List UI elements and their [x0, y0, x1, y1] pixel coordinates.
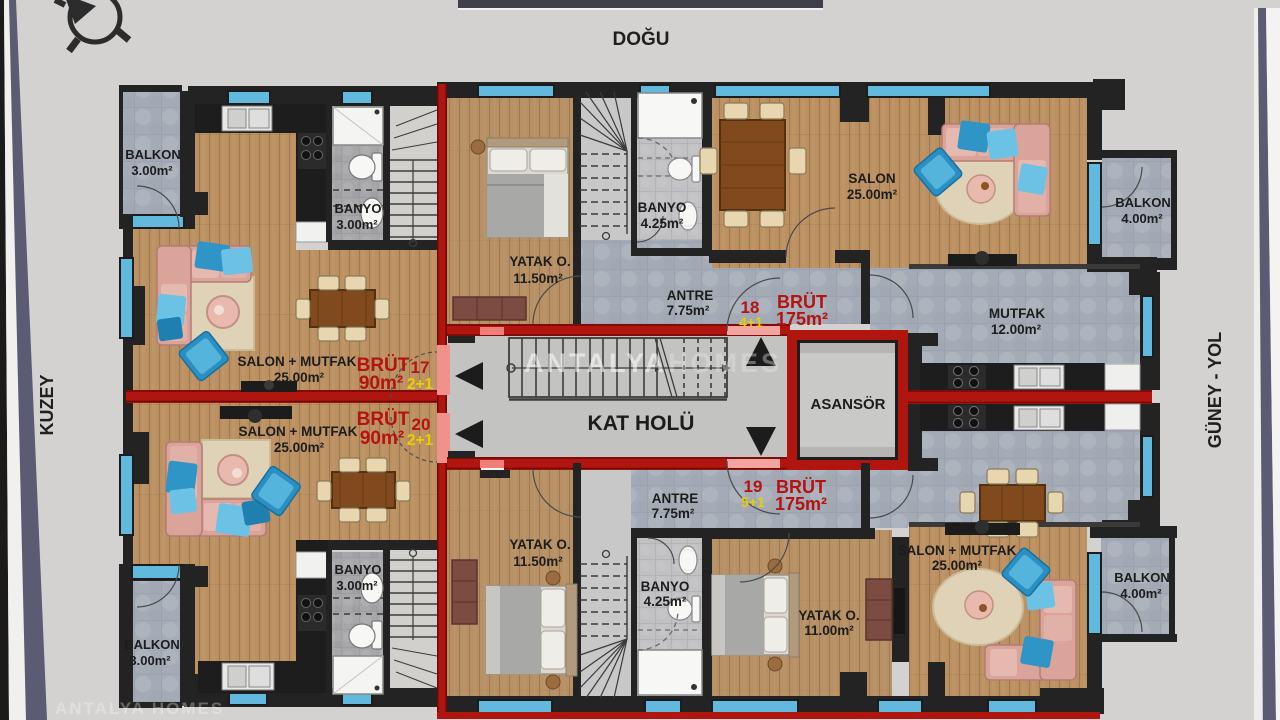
- svg-text:SALON: SALON: [848, 171, 895, 186]
- svg-text:5+1: 5+1: [741, 494, 765, 510]
- svg-text:ANTRE: ANTRE: [652, 491, 699, 506]
- svg-text:7.75m²: 7.75m²: [667, 303, 710, 318]
- svg-text:BANYO: BANYO: [335, 562, 382, 577]
- svg-text:12.00m²: 12.00m²: [991, 322, 1042, 337]
- svg-text:SALON + MUTFAK: SALON + MUTFAK: [898, 543, 1017, 558]
- svg-text:25.00m²: 25.00m²: [932, 558, 983, 573]
- svg-text:11.50m²: 11.50m²: [513, 554, 563, 569]
- svg-text:SALON + MUTFAK: SALON + MUTFAK: [238, 354, 357, 369]
- svg-text:KAT HOLÜ: KAT HOLÜ: [588, 412, 695, 435]
- svg-text:4.25m²: 4.25m²: [644, 594, 687, 609]
- svg-text:BANYO: BANYO: [335, 201, 382, 216]
- svg-text:BANYO: BANYO: [641, 579, 690, 594]
- svg-text:YATAK O.: YATAK O.: [509, 254, 570, 269]
- svg-text:3.00m²: 3.00m²: [336, 578, 378, 593]
- svg-text:2+1: 2+1: [407, 376, 434, 393]
- svg-text:BALKON: BALKON: [125, 147, 181, 162]
- svg-text:90m²: 90m²: [359, 373, 403, 394]
- svg-text:DOĞU: DOĞU: [613, 28, 670, 50]
- svg-text:BRÜT: BRÜT: [357, 409, 410, 430]
- svg-text:BALKON: BALKON: [124, 637, 180, 652]
- svg-text:17: 17: [411, 358, 430, 377]
- svg-text:25.00m²: 25.00m²: [847, 187, 898, 202]
- svg-text:4.25m²: 4.25m²: [641, 216, 684, 231]
- svg-text:ASANSÖR: ASANSÖR: [810, 396, 885, 413]
- svg-text:2+1: 2+1: [407, 432, 434, 449]
- svg-text:MUTFAK: MUTFAK: [989, 306, 1045, 321]
- svg-text:90m²: 90m²: [360, 428, 404, 449]
- svg-text:7.75m²: 7.75m²: [652, 506, 695, 521]
- svg-text:11.00m²: 11.00m²: [804, 623, 854, 638]
- svg-text:175m²: 175m²: [776, 309, 828, 329]
- svg-text:SALON + MUTFAK: SALON + MUTFAK: [239, 424, 358, 439]
- svg-text:25.00m²: 25.00m²: [274, 440, 325, 455]
- svg-text:YATAK O.: YATAK O.: [509, 537, 570, 552]
- svg-text:4.00m²: 4.00m²: [1121, 211, 1163, 226]
- svg-text:11.50m²: 11.50m²: [513, 271, 563, 286]
- svg-text:ANTRE: ANTRE: [667, 288, 714, 303]
- svg-text:GÜNEY - YOL: GÜNEY - YOL: [1205, 332, 1225, 448]
- svg-text:3.00m²: 3.00m²: [129, 653, 171, 668]
- svg-text:BALKON: BALKON: [1115, 195, 1171, 210]
- svg-text:ANTALYA HOMES: ANTALYA HOMES: [55, 699, 224, 718]
- svg-text:BALKON: BALKON: [1114, 570, 1170, 585]
- svg-text:3.00m²: 3.00m²: [336, 217, 378, 232]
- svg-text:3.00m²: 3.00m²: [131, 163, 173, 178]
- svg-text:175m²: 175m²: [775, 494, 827, 514]
- svg-text:4.00m²: 4.00m²: [1120, 586, 1162, 601]
- svg-text:BANYO: BANYO: [638, 200, 687, 215]
- svg-text:ANTALYA: ANTALYA: [524, 348, 667, 378]
- svg-text:25.00m²: 25.00m²: [274, 370, 325, 385]
- svg-text:4+1: 4+1: [739, 314, 763, 330]
- svg-text:HOMES: HOMES: [668, 348, 782, 378]
- svg-text:YATAK O.: YATAK O.: [798, 608, 859, 623]
- svg-text:KUZEY: KUZEY: [37, 374, 57, 435]
